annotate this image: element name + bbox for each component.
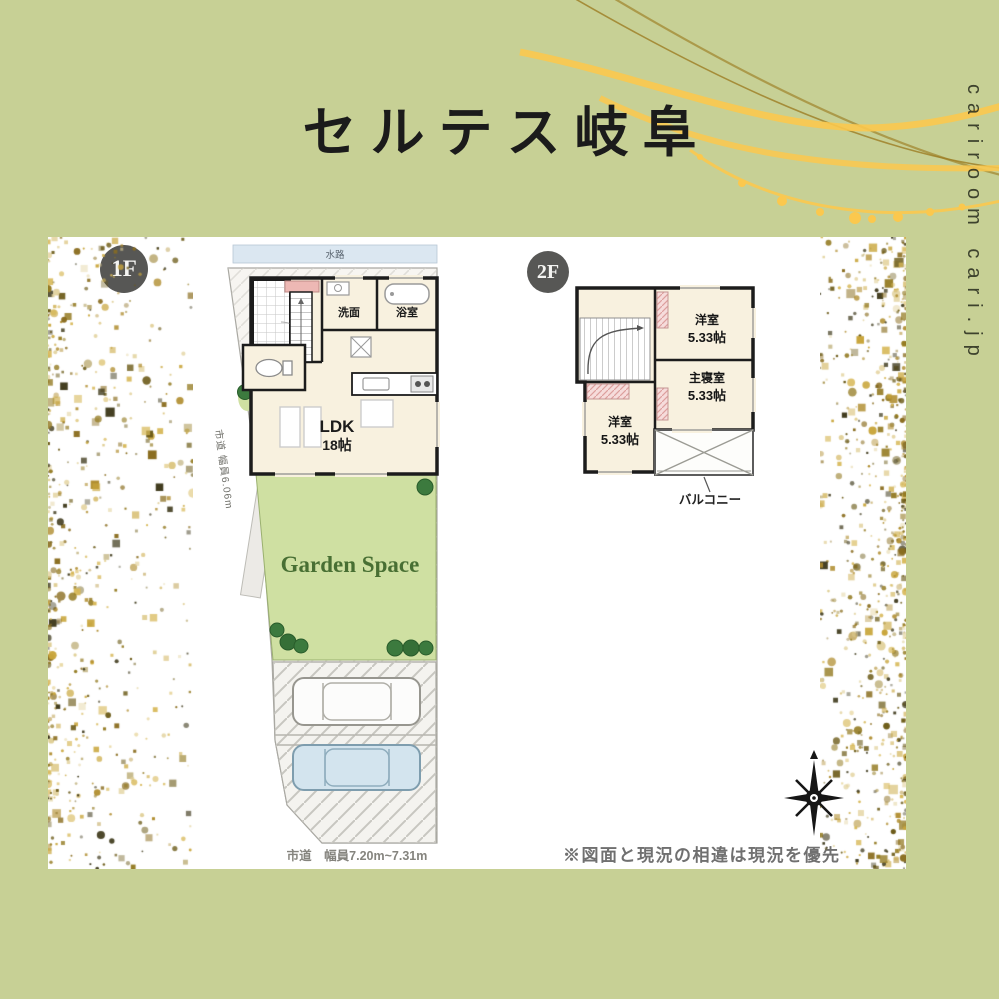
tree — [417, 479, 433, 495]
balcony-label: バルコニー — [679, 493, 741, 507]
parking-area — [273, 662, 436, 843]
floor-2f-badge: 2F — [527, 251, 569, 293]
road-left-label: 市道 幅員6.06m — [212, 429, 236, 511]
floor-1f-badge: 1F — [100, 245, 148, 293]
closet — [657, 292, 668, 328]
confetti-left-band — [48, 237, 193, 869]
car-1 — [293, 678, 420, 725]
house-2f: 洋室 5.33帖 主寝室 5.33帖 洋室 5.33帖 バルコニー — [577, 285, 756, 507]
bathroom-label: 浴室 — [396, 305, 418, 319]
toilet-room — [243, 345, 305, 390]
ldk-label: LDK — [320, 417, 356, 436]
floor-hatch-icon — [351, 337, 371, 357]
page-title: セルテス岐阜 — [0, 88, 999, 167]
car-2 — [293, 745, 420, 790]
dining-table — [280, 407, 321, 447]
house-1f: 洗面 浴室 — [243, 275, 440, 477]
floor-2f-plan: 洋室 5.33帖 主寝室 5.33帖 洋室 5.33帖 バルコニー — [560, 270, 780, 520]
washroom-label: 洗面 — [338, 305, 360, 319]
balcony-area — [655, 430, 753, 492]
floor-1f-plan: 水路 Garden Space — [185, 242, 450, 867]
disclaimer-note: ※図面と現況の相違は現況を優先 — [563, 841, 923, 866]
room-label: 洋室 — [695, 312, 719, 327]
floorplan-card: 1F 2F — [48, 237, 906, 869]
shoe-cabinet — [285, 281, 319, 292]
garden-label: Garden Space — [281, 552, 420, 577]
room-label: 主寝室 — [689, 370, 725, 385]
closet — [587, 384, 629, 399]
road-bottom-label: 市道 幅員7.20m~7.31m — [287, 848, 428, 863]
stairs-2f — [580, 318, 650, 380]
washbasin-icon — [327, 282, 349, 295]
sofa — [361, 400, 393, 427]
ldk-size-label: 18帖 — [322, 437, 352, 453]
room-size: 5.33帖 — [688, 388, 726, 403]
closet — [657, 388, 668, 420]
toilet-icon — [256, 360, 282, 377]
compass-icon — [782, 750, 846, 842]
waterway-strip: 水路 — [233, 245, 437, 263]
room-size: 5.33帖 — [601, 432, 639, 447]
bush-row-right — [387, 640, 433, 656]
waterway-label: 水路 — [325, 249, 345, 261]
watermark-text: cariroom cari.jp — [962, 84, 985, 504]
room-size: 5.33帖 — [688, 330, 726, 345]
kitchen-counter — [352, 373, 437, 395]
room-label: 洋室 — [608, 414, 632, 429]
page: { "page": { "background": "#c7d095", "ca… — [0, 0, 999, 999]
